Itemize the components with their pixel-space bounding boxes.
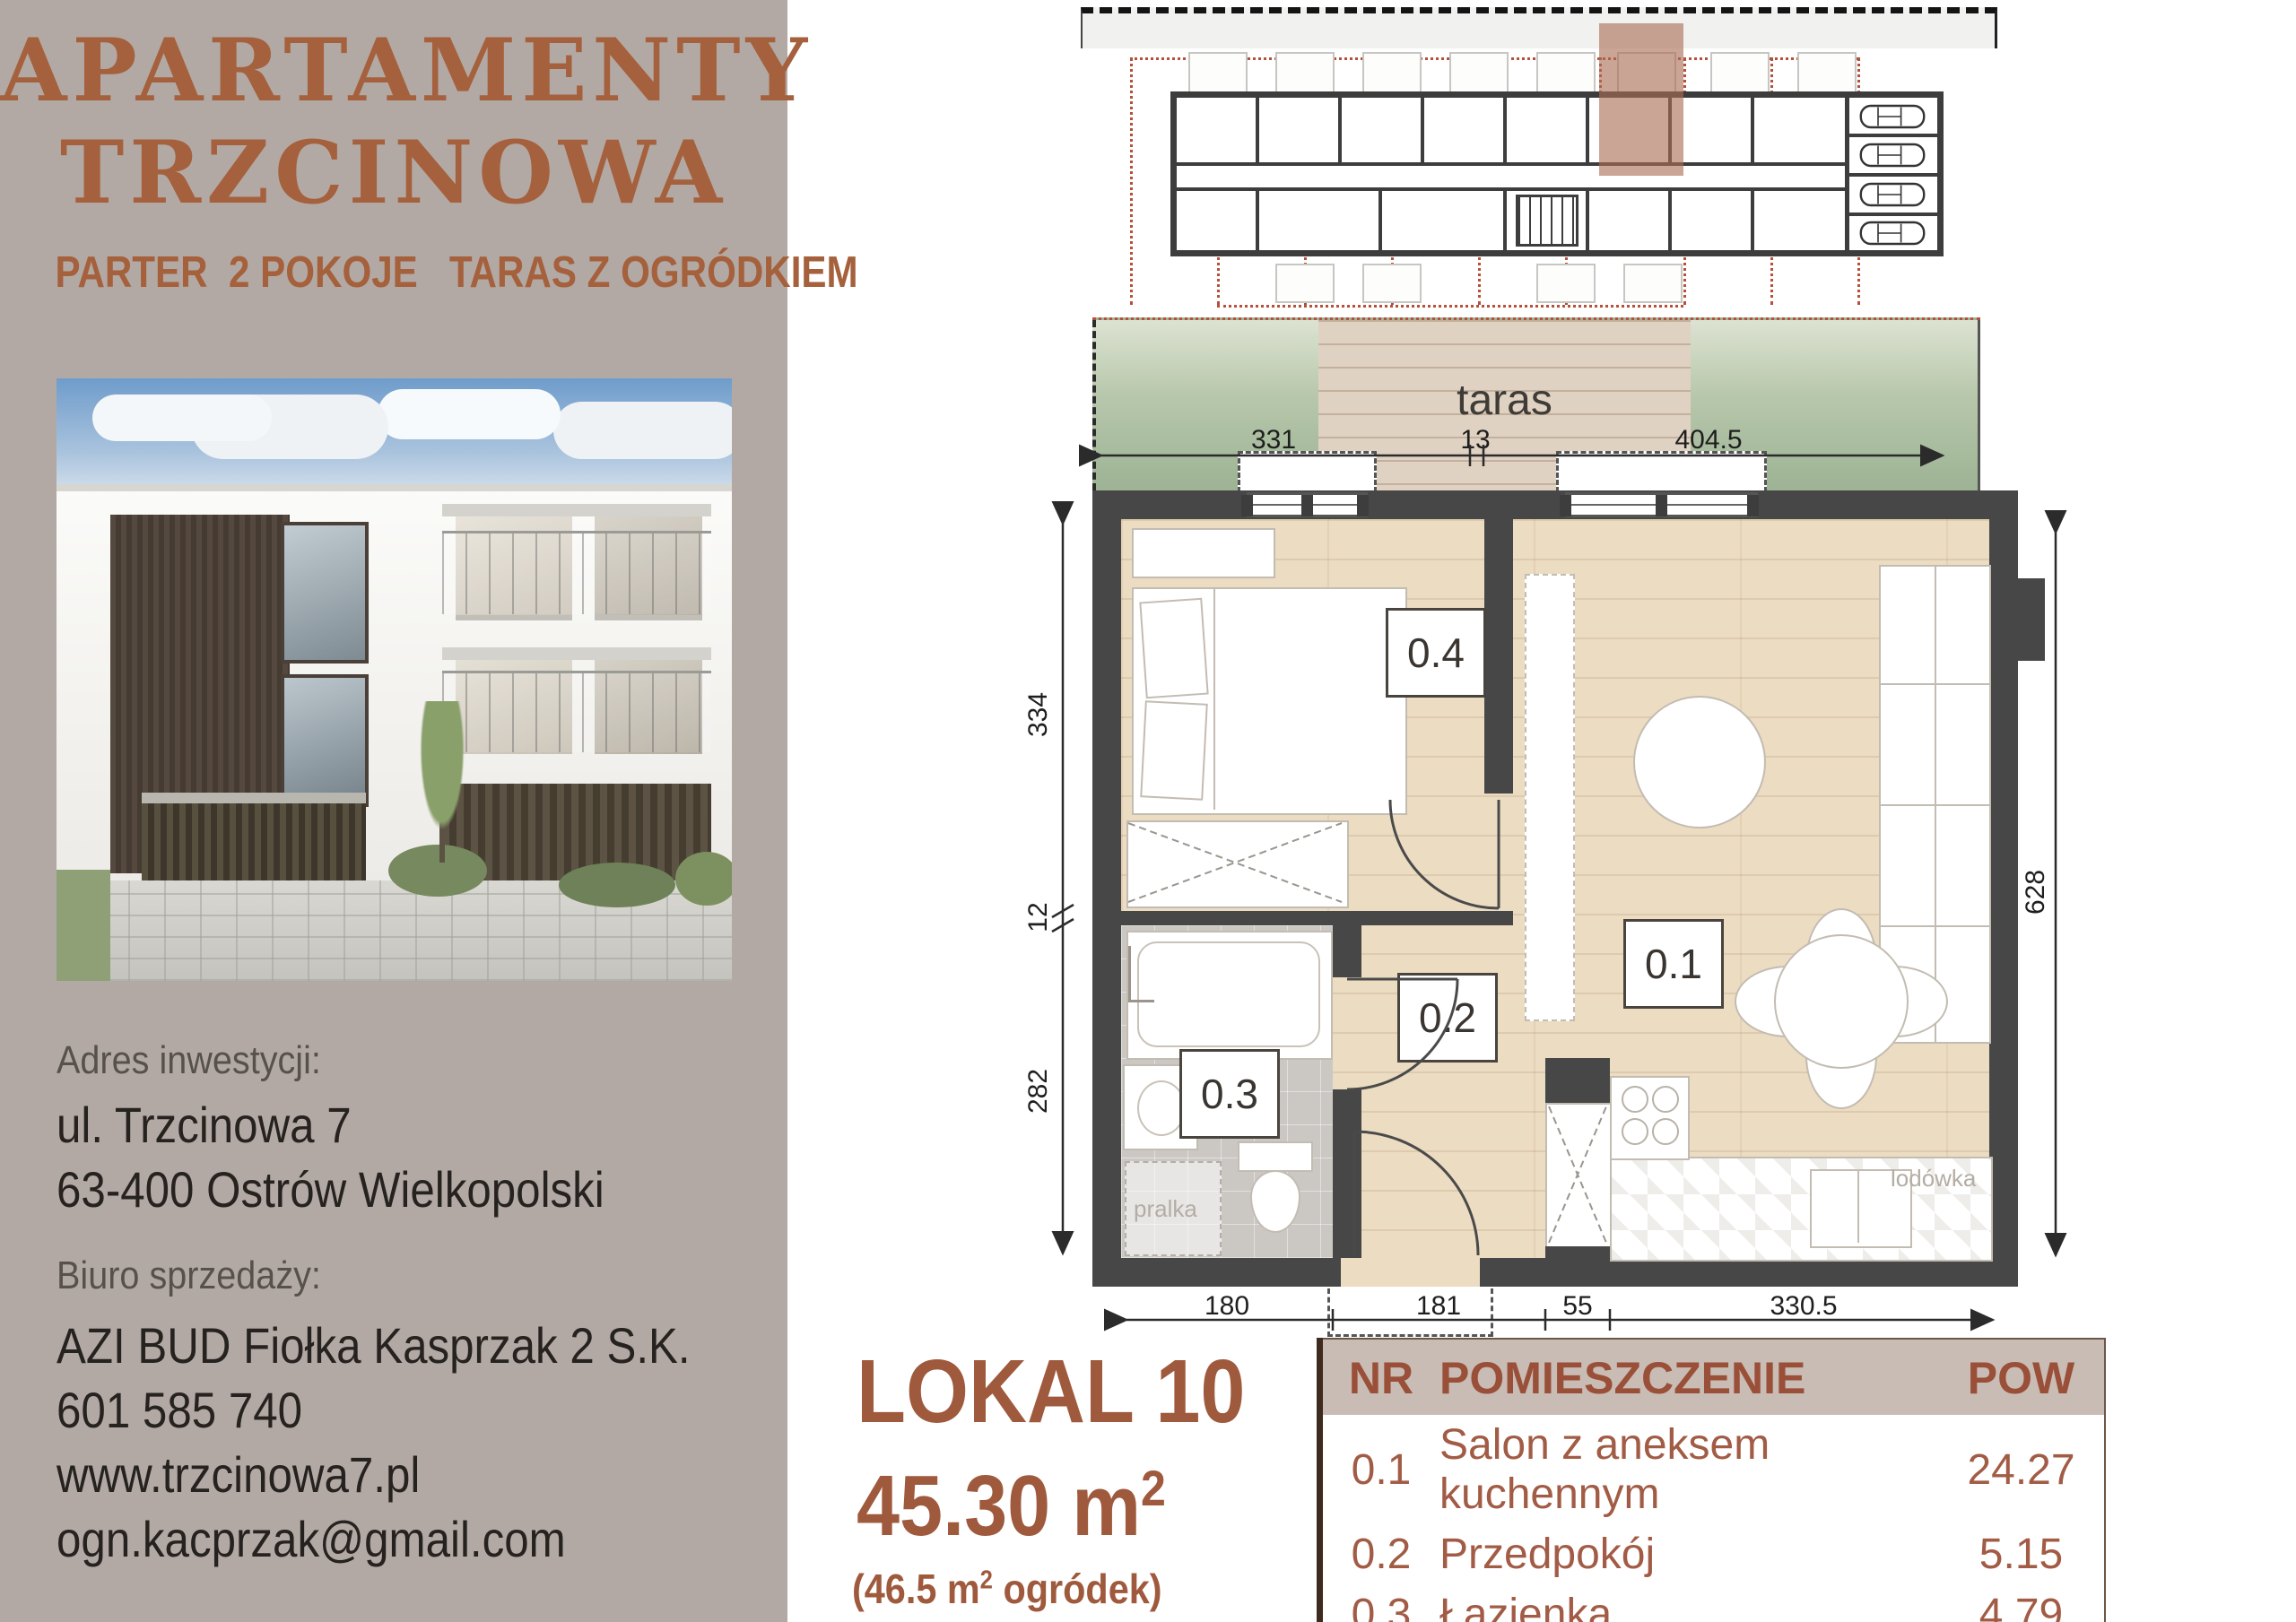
terrace-outline bbox=[1449, 52, 1509, 93]
unit-divider bbox=[1378, 191, 1382, 250]
window bbox=[1247, 492, 1368, 517]
car-icon bbox=[1857, 218, 1928, 248]
window bbox=[1565, 492, 1758, 517]
dim-label-bottom: 180 bbox=[1173, 1291, 1281, 1322]
terrace-outline bbox=[1188, 52, 1248, 93]
sofa-back-line bbox=[1935, 567, 1936, 1042]
garden-area: taras bbox=[1092, 317, 1980, 490]
terrace-outline bbox=[1362, 52, 1422, 93]
dim-label-left: 334 bbox=[1023, 661, 1054, 768]
bathtub-inner bbox=[1137, 941, 1320, 1047]
cell-room: Łazienka bbox=[1439, 1584, 1938, 1622]
cell-nr: 0.2 bbox=[1320, 1524, 1440, 1584]
unit-divider bbox=[1586, 191, 1589, 250]
terrace-outline bbox=[1536, 264, 1596, 303]
unit-area-value: 45.30 m bbox=[857, 1458, 1141, 1554]
bush bbox=[675, 852, 732, 906]
canopy bbox=[142, 793, 366, 803]
cell-area: 4.79 bbox=[1938, 1584, 2105, 1622]
unit-divider bbox=[1503, 191, 1507, 250]
terrace-outline bbox=[1275, 264, 1335, 303]
unit-divider bbox=[1668, 191, 1672, 250]
shelf bbox=[1132, 528, 1275, 578]
burner bbox=[1622, 1118, 1648, 1145]
address-line2: 63-400 Ostrów Wielkopolski bbox=[57, 1160, 604, 1219]
col-header-nr: NR bbox=[1320, 1339, 1440, 1415]
unit-divider bbox=[1751, 98, 1754, 162]
col-header-pomieszczenie: POMIESZCZENIE bbox=[1439, 1339, 1938, 1415]
col-header-pow: POW bbox=[1938, 1339, 2105, 1415]
mattress-line bbox=[1213, 589, 1215, 810]
apartment-floorplan: lodówka pralka 0.1 0.2 0.3 0.4 bbox=[1092, 490, 2018, 1287]
table-row: 0.3 Łazienka 4.79 bbox=[1320, 1584, 2106, 1622]
unit-divider bbox=[1256, 191, 1259, 250]
dim-label-bottom: 330.5 bbox=[1750, 1291, 1857, 1322]
room-label-0-1: 0.1 bbox=[1623, 919, 1724, 1009]
bush bbox=[559, 863, 675, 907]
window-threshold bbox=[1556, 451, 1767, 492]
stairwell bbox=[1516, 195, 1578, 247]
garage-divider bbox=[1849, 134, 1937, 137]
unit-divider bbox=[1256, 98, 1259, 162]
dim-label-right: 628 bbox=[2021, 838, 2051, 946]
window-threshold bbox=[1238, 451, 1377, 492]
kitchen-tall-cabinet bbox=[1545, 1103, 1613, 1250]
dark-window bbox=[281, 522, 369, 664]
building-photo bbox=[57, 378, 732, 981]
address-line1: ul. Trzcinowa 7 bbox=[57, 1096, 352, 1154]
garden-note-prefix: (46.5 m bbox=[852, 1566, 980, 1612]
plot-line bbox=[1130, 57, 1133, 305]
corridor-wall bbox=[1177, 187, 1845, 191]
washer-label: pralka bbox=[1134, 1195, 1197, 1223]
terrace-outline bbox=[1536, 52, 1596, 93]
room-number: 0.1 bbox=[1645, 940, 1702, 988]
unit-divider bbox=[1751, 191, 1754, 250]
terrace-outline bbox=[1623, 264, 1683, 303]
terrace-outline bbox=[1362, 264, 1422, 303]
room-number: 0.3 bbox=[1201, 1070, 1258, 1118]
garage-divider bbox=[1849, 213, 1937, 216]
cell-nr: 0.1 bbox=[1320, 1415, 1440, 1524]
building-outline bbox=[1170, 91, 1944, 256]
cell-room: Przedpokój bbox=[1439, 1524, 1938, 1584]
unit-divider bbox=[1586, 98, 1589, 162]
wall-bottom bbox=[1092, 1258, 2018, 1287]
wall-kitchen-stub bbox=[1545, 1058, 1610, 1103]
balcony-slab bbox=[442, 504, 711, 516]
cell-nr: 0.3 bbox=[1320, 1584, 1440, 1622]
toilet-tank bbox=[1238, 1141, 1313, 1172]
wall-left bbox=[1092, 490, 1121, 1287]
dim-label-left: 282 bbox=[1023, 1037, 1054, 1145]
roof-line bbox=[57, 484, 732, 491]
terrace-outline bbox=[1797, 52, 1857, 93]
office-label: Biuro sprzedaży: bbox=[57, 1253, 321, 1298]
hob bbox=[1610, 1076, 1690, 1160]
wall-top bbox=[1092, 490, 2018, 519]
wall-right bbox=[1989, 490, 2018, 1287]
terrace-outline bbox=[1275, 52, 1335, 93]
unit-divider bbox=[1421, 98, 1424, 162]
burner bbox=[1622, 1086, 1648, 1113]
unit-area: 45.30 m2 bbox=[857, 1457, 1166, 1556]
plot-edge bbox=[1092, 320, 1096, 490]
wall-bedroom-bottom bbox=[1121, 911, 1513, 925]
cell-area: 5.15 bbox=[1938, 1524, 2105, 1584]
page-title-line1: APARTAMENTY bbox=[0, 20, 787, 121]
wall-step-out bbox=[2018, 578, 2045, 661]
garage-divider bbox=[1849, 173, 1937, 177]
cloud bbox=[92, 395, 272, 441]
burner bbox=[1652, 1086, 1679, 1113]
wall-bathroom-right bbox=[1333, 1089, 1361, 1258]
dining-table bbox=[1774, 934, 1909, 1069]
cell-room: Salon z aneksem kuchennym bbox=[1439, 1415, 1938, 1524]
wall-shaft bbox=[1545, 1246, 1610, 1258]
table-row: 0.1 Salon z aneksem kuchennym 24.27 bbox=[1320, 1415, 2106, 1524]
dim-label-top: 13 bbox=[1422, 425, 1529, 455]
cell-area: 24.27 bbox=[1938, 1415, 2105, 1524]
highlighted-unit bbox=[1599, 23, 1683, 176]
unit-divider bbox=[1503, 98, 1507, 162]
table-header-row: NR POMIESZCZENIE POW bbox=[1320, 1339, 2106, 1415]
round-table bbox=[1633, 696, 1766, 828]
shower-mixer-icon bbox=[1128, 946, 1154, 1002]
dim-label-top: 331 bbox=[1220, 425, 1327, 455]
office-company: AZI BUD Fiołka Kasprzak 2 S.K. bbox=[57, 1316, 691, 1375]
unit-title-text: LOKAL 10 bbox=[857, 1341, 1245, 1442]
dim-label-bottom: 181 bbox=[1385, 1291, 1492, 1322]
office-email: ogn.kacprzak@gmail.com bbox=[57, 1510, 566, 1568]
bathtub bbox=[1126, 931, 1333, 1060]
tree bbox=[411, 701, 474, 863]
flyer-page: APARTAMENTY TRZCINOWA PARTER 2 POKOJE TA… bbox=[0, 0, 2296, 1622]
room-label-0-3: 0.3 bbox=[1179, 1049, 1280, 1139]
fridge-label: lodówka bbox=[1891, 1165, 1976, 1193]
car-icon bbox=[1857, 101, 1928, 132]
wardrobe bbox=[1126, 820, 1349, 908]
plot-line bbox=[1217, 305, 1683, 308]
page-title-line2: TRZCINOWA bbox=[0, 122, 787, 223]
wall-bathroom-right bbox=[1333, 925, 1361, 977]
address-label: Adres inwestycji: bbox=[57, 1038, 321, 1083]
burner bbox=[1652, 1118, 1679, 1145]
corridor-wall bbox=[1177, 162, 1845, 166]
sidebar: APARTAMENTY TRZCINOWA PARTER 2 POKOJE TA… bbox=[0, 0, 787, 1622]
terrace-label: taras bbox=[1318, 376, 1691, 425]
terrace-outline bbox=[1710, 52, 1770, 93]
dark-window bbox=[281, 674, 369, 807]
dim-label-top: 404.5 bbox=[1655, 425, 1762, 455]
room-label-0-4: 0.4 bbox=[1386, 608, 1486, 698]
pillow bbox=[1140, 700, 1208, 801]
office-website: www.trzcinowa7.pl bbox=[57, 1445, 420, 1504]
unit-divider bbox=[1338, 98, 1342, 162]
balcony-railing bbox=[442, 531, 711, 614]
balcony-railing bbox=[442, 671, 711, 752]
subtitle: PARTER 2 POKOJE TARAS Z OGRÓDKIEM bbox=[55, 247, 732, 298]
room-area-table: NR POMIESZCZENIE POW 0.1 Salon z aneksem… bbox=[1317, 1338, 2106, 1622]
office-phone: 601 585 740 bbox=[57, 1381, 302, 1439]
grass-strip bbox=[57, 870, 110, 981]
table-row: 0.2 Przedpokój 5.15 bbox=[1320, 1524, 2106, 1584]
unit-title: LOKAL 10 bbox=[857, 1340, 1245, 1444]
room-number: 0.2 bbox=[1419, 993, 1476, 1042]
tv-unit bbox=[1525, 574, 1575, 1021]
dim-label-bottom: 55 bbox=[1524, 1291, 1631, 1322]
wall-bedroom-living bbox=[1484, 519, 1513, 794]
dim-label-left: 12 bbox=[1023, 863, 1054, 971]
garden-note-suffix: ogródek) bbox=[993, 1566, 1162, 1612]
car-icon bbox=[1857, 179, 1928, 210]
room-label-0-2: 0.2 bbox=[1397, 973, 1498, 1063]
garden-note-sup: 2 bbox=[980, 1566, 993, 1595]
road-strip bbox=[1081, 7, 1997, 48]
garden-note: (46.5 m2 ogródek) bbox=[852, 1565, 1162, 1613]
room-number: 0.4 bbox=[1407, 629, 1465, 677]
sink-divider bbox=[1857, 1171, 1859, 1243]
basin-bowl bbox=[1137, 1080, 1186, 1136]
plot-edge bbox=[1978, 320, 1980, 490]
balcony-slab bbox=[442, 647, 711, 660]
pillow bbox=[1139, 598, 1208, 699]
car-icon bbox=[1857, 140, 1928, 170]
building-overview-plan bbox=[1081, 5, 2031, 316]
entrance-opening bbox=[1341, 1258, 1480, 1287]
unit-area-sup: 2 bbox=[1141, 1461, 1166, 1516]
